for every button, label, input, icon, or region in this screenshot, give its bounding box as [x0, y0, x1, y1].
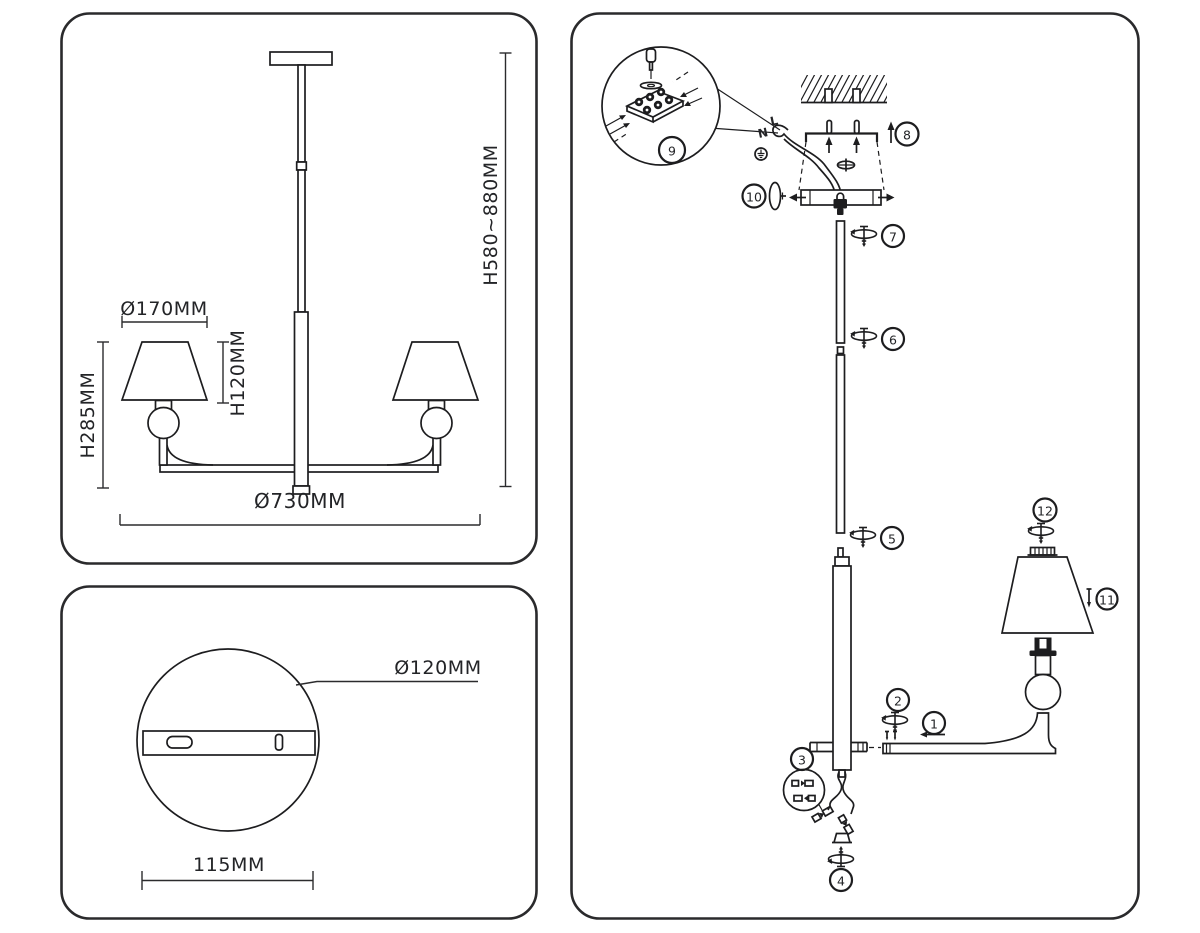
- column-body: [833, 566, 851, 770]
- terminal-block-detail: 9: [602, 47, 720, 165]
- callout-5-label: 5: [888, 532, 896, 547]
- left-lamp-stem: [160, 438, 168, 465]
- callout-11-label: 11: [1099, 593, 1115, 608]
- body-height-label: H285MM: [77, 372, 99, 459]
- drill-hole: [825, 89, 832, 103]
- ceiling-plate: [270, 52, 332, 65]
- callout-12-label: 12: [1037, 504, 1053, 519]
- column-stub: [838, 548, 843, 557]
- detail-circle: [784, 770, 825, 811]
- wall-plug: [827, 121, 832, 134]
- callout-8-label: 8: [903, 128, 911, 143]
- right-lamp-stem: [433, 438, 441, 465]
- wall-plug: [855, 121, 860, 134]
- mount-bracket-bar: [143, 731, 315, 755]
- extension-rod-1: [837, 221, 845, 343]
- rod-connector: [838, 347, 844, 354]
- callout-3-label: 3: [798, 753, 806, 768]
- callout-7-label: 7: [889, 230, 897, 245]
- assembly-panel: 9: [570, 12, 1140, 920]
- right-lamp-ball: [421, 408, 452, 439]
- left-lamp-ball: [148, 408, 179, 439]
- column-collar: [835, 557, 849, 566]
- center-tube: [295, 312, 309, 486]
- hanger-rod-lower: [298, 170, 305, 312]
- rod-joint-collar: [297, 162, 307, 170]
- instruction-sheet: Ø170MM H120MM H285MM Ø730MM: [0, 0, 1200, 933]
- callout-10-label: 10: [746, 190, 762, 205]
- bracket-width-label: 115MM: [193, 854, 265, 876]
- fixture-width-label: Ø730MM: [254, 489, 346, 513]
- callout-9-label: 9: [668, 144, 676, 159]
- shade-diameter-label: Ø170MM: [120, 298, 208, 320]
- plate-diameter-label: Ø120MM: [394, 657, 482, 679]
- connector-detail: [784, 770, 825, 811]
- socket-ball: [1026, 675, 1061, 710]
- cover-washer: [770, 183, 781, 210]
- hanger-rod-upper: [298, 65, 305, 162]
- callout-6-label: 6: [889, 333, 897, 348]
- mount-plate-panel: Ø120MM 115MM: [60, 585, 538, 920]
- callout-4-label: 4: [837, 874, 845, 889]
- shade-height-label: H120MM: [227, 330, 249, 417]
- dimension-panel: Ø170MM H120MM H285MM Ø730MM: [60, 12, 538, 565]
- overall-height-label: H580~880MM: [480, 144, 502, 286]
- callout-2-label: 2: [894, 694, 902, 709]
- drill-hole: [853, 89, 860, 103]
- callout-1-label: 1: [930, 717, 938, 732]
- center-column: [833, 548, 851, 770]
- extension-rod-2: [837, 355, 845, 533]
- socket-cylinder: [1036, 656, 1051, 675]
